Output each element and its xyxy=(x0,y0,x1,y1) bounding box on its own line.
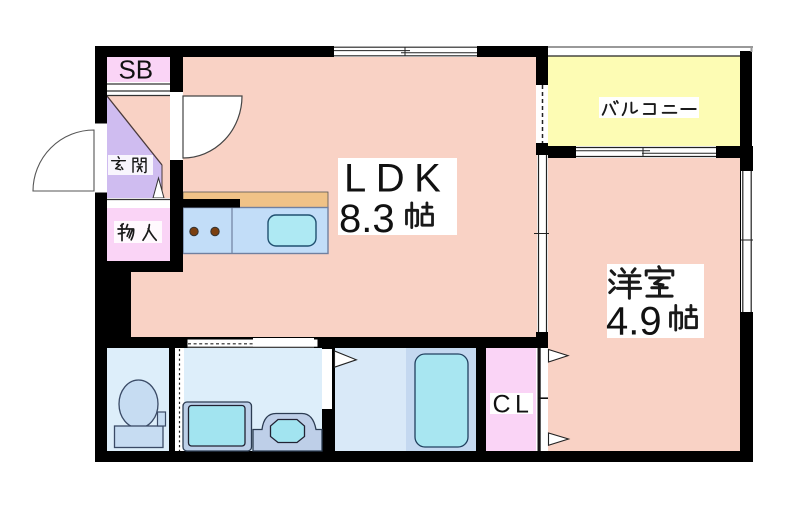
svg-text:SB: SB xyxy=(118,54,153,84)
svg-text:4.9: 4.9 xyxy=(606,300,662,344)
svg-text:LDK: LDK xyxy=(344,157,450,201)
svg-text:8.3: 8.3 xyxy=(339,197,395,241)
svg-text:CL: CL xyxy=(493,391,534,419)
